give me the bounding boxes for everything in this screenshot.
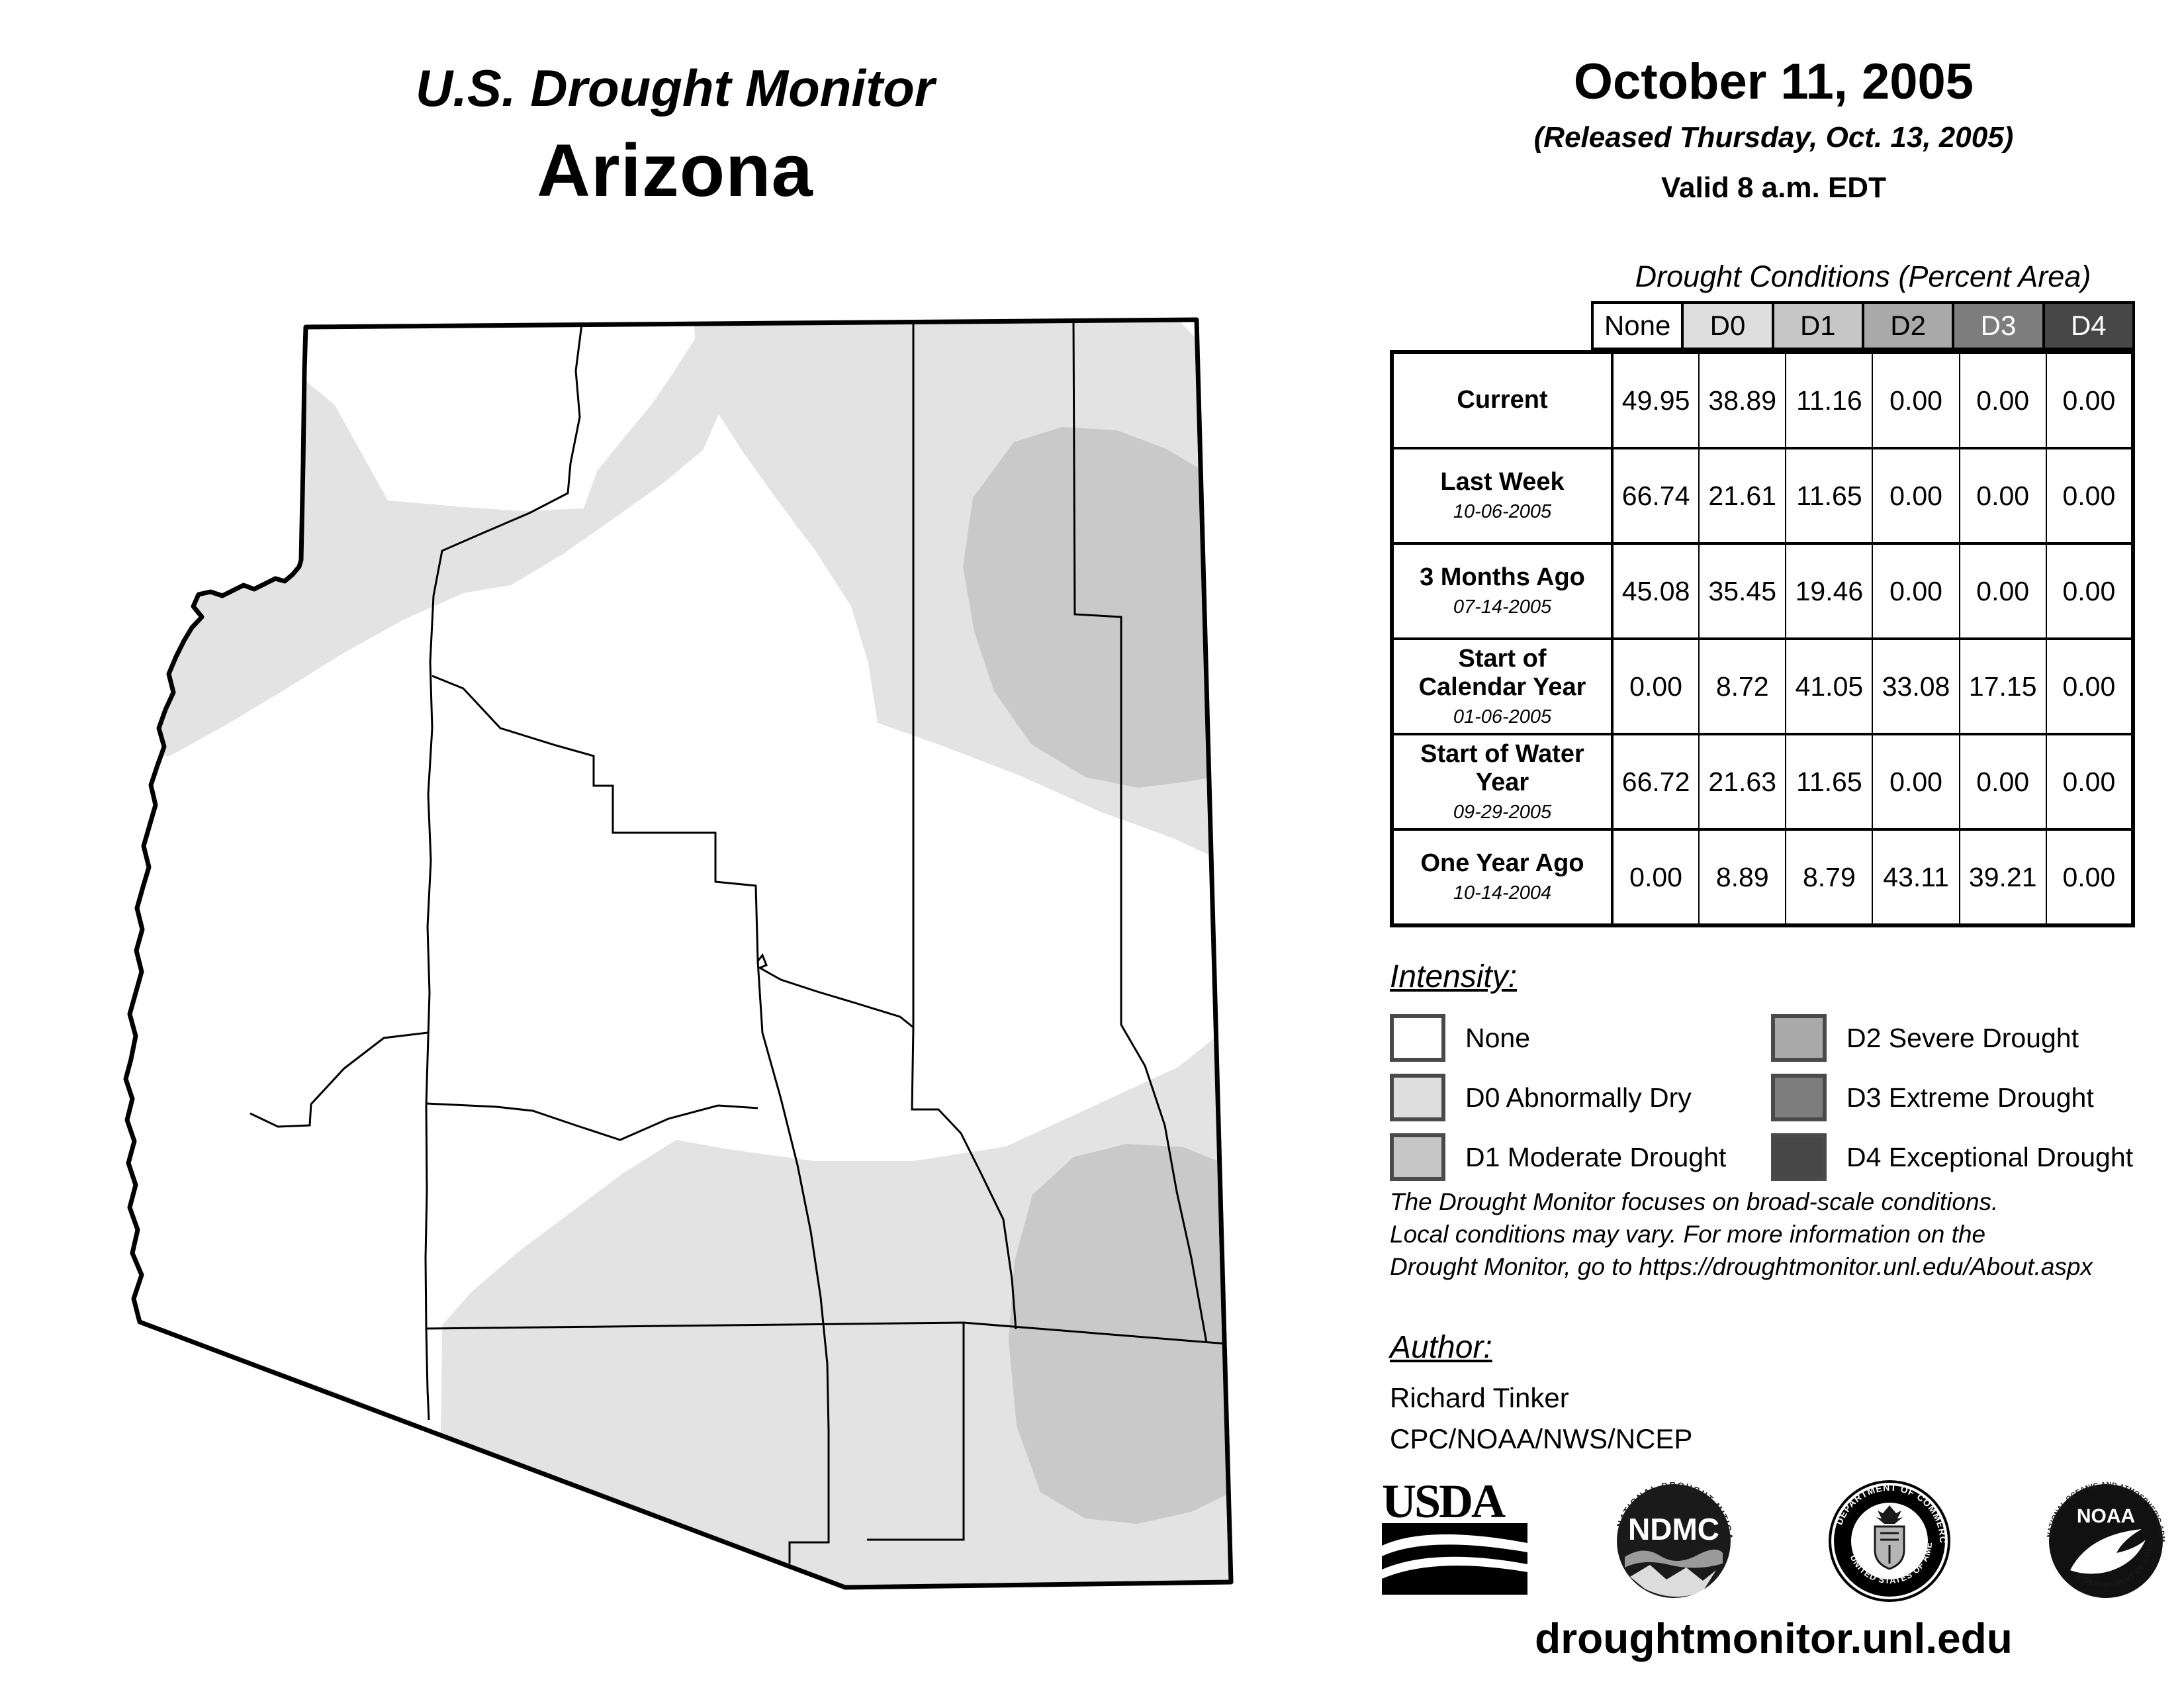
column-header-d3: D3 [1953, 301, 2043, 350]
column-header-d0: D0 [1682, 301, 1772, 350]
cell-value: 8.79 [1786, 829, 1872, 925]
author-name: Richard Tinker [1390, 1382, 1569, 1414]
cell-value: 39.21 [1960, 829, 2046, 925]
row-label: 3 Months Ago07-14-2005 [1392, 543, 1612, 639]
cell-value: 0.00 [1960, 734, 2046, 829]
author-org: CPC/NOAA/NWS/NCEP [1390, 1423, 1692, 1455]
cell-value: 0.00 [2046, 352, 2133, 448]
cell-value: 19.46 [1786, 543, 1872, 639]
legend-item-none: None [1390, 1014, 1771, 1062]
row-label: One Year Ago10-14-2004 [1392, 829, 1612, 925]
cell-value: 38.89 [1699, 352, 1786, 448]
ndmc-logo-text: NDMC [1628, 1512, 1719, 1546]
column-header-none: None [1591, 301, 1682, 350]
legend-item-d1: D1 Moderate Drought [1390, 1133, 1771, 1181]
cell-value: 11.16 [1786, 352, 1872, 448]
usda-logo-text: USDA [1382, 1480, 1527, 1523]
intensity-legend: None D2 Severe Drought D0 Abnormally Dry… [1390, 1014, 2171, 1193]
table-header-row: None D0 D1 D2 D3 D4 [1591, 301, 2135, 350]
cell-value: 0.00 [2046, 829, 2133, 925]
table-row: Start of Water Year09-29-2005 66.72 21.6… [1392, 734, 2133, 829]
cell-value: 21.63 [1699, 734, 1786, 829]
agency-logos: USDA NATIONAL DROUGHT MITIGATION CENTER … [1382, 1475, 2176, 1607]
date-block: October 11, 2005 (Released Thursday, Oct… [1377, 53, 2171, 205]
table-row: Start of Calendar Year01-06-2005 0.00 8.… [1392, 639, 2133, 734]
noaa-logo-text: NOAA [2077, 1505, 2135, 1527]
footer-url: droughtmonitor.unl.edu [1377, 1614, 2171, 1663]
cell-value: 0.00 [1872, 543, 1959, 639]
cell-value: 49.95 [1612, 352, 1699, 448]
legend-item-d3: D3 Extreme Drought [1771, 1074, 2094, 1121]
cell-value: 0.00 [2046, 543, 2133, 639]
cell-value: 0.00 [1960, 448, 2046, 543]
cell-value: 0.00 [1960, 352, 2046, 448]
column-header-d4: D4 [2044, 301, 2135, 350]
column-header-d1: D1 [1773, 301, 1863, 350]
map-region-d1-southeast [1009, 1144, 1238, 1524]
row-label: Current [1392, 352, 1612, 448]
cell-value: 0.00 [2046, 448, 2133, 543]
arizona-drought-map [0, 0, 1324, 1688]
commerce-seal-logo: DEPARTMENT OF COMMERCE UNITED STATES OF … [1819, 1471, 1960, 1611]
cell-value: 0.00 [1960, 543, 2046, 639]
noaa-logo: NATIONAL OCEANIC AND ATMOSPHERIC ADMINIS… [2036, 1471, 2176, 1611]
cell-value: 0.00 [1872, 352, 1959, 448]
cell-value: 41.05 [1786, 639, 1872, 734]
cell-value: 0.00 [2046, 734, 2133, 829]
cell-value: 33.08 [1872, 639, 1959, 734]
cell-value: 0.00 [1612, 829, 1699, 925]
row-label: Start of Calendar Year01-06-2005 [1392, 639, 1612, 734]
drought-conditions-table: Current 49.95 38.89 11.16 0.00 0.00 0.00… [1390, 350, 2135, 927]
report-released-date: (Released Thursday, Oct. 13, 2005) [1377, 121, 2171, 154]
cell-value: 8.89 [1699, 829, 1786, 925]
disclaimer-text: The Drought Monitor focuses on broad-sca… [1390, 1186, 2171, 1283]
report-date: October 11, 2005 [1377, 53, 2171, 111]
legend-item-d2: D2 Severe Drought [1771, 1014, 2079, 1062]
cell-value: 45.08 [1612, 543, 1699, 639]
cell-value: 8.72 [1699, 639, 1786, 734]
cell-value: 43.11 [1872, 829, 1959, 925]
cell-value: 11.65 [1786, 734, 1872, 829]
cell-value: 35.45 [1699, 543, 1786, 639]
cell-value: 66.72 [1612, 734, 1699, 829]
column-header-d2: D2 [1863, 301, 1953, 350]
legend-swatch-d2 [1771, 1014, 1827, 1062]
usda-swoosh-icon [1382, 1523, 1527, 1595]
cell-value: 21.61 [1699, 448, 1786, 543]
cell-value: 0.00 [2046, 639, 2133, 734]
report-valid-time: Valid 8 a.m. EDT [1377, 171, 2171, 205]
legend-swatch-none [1390, 1014, 1445, 1062]
ndmc-logo: NATIONAL DROUGHT MITIGATION CENTER UNIVE… [1604, 1471, 1744, 1611]
author-heading: Author: [1390, 1329, 1492, 1366]
table-row: One Year Ago10-14-2004 0.00 8.89 8.79 43… [1392, 829, 2133, 925]
row-label: Start of Water Year09-29-2005 [1392, 734, 1612, 829]
cell-value: 0.00 [1612, 639, 1699, 734]
table-row: Last Week10-06-2005 66.74 21.61 11.65 0.… [1392, 448, 2133, 543]
table-row: Current 49.95 38.89 11.16 0.00 0.00 0.00 [1392, 352, 2133, 448]
cell-value: 11.65 [1786, 448, 1872, 543]
legend-item-d4: D4 Exceptional Drought [1771, 1133, 2133, 1181]
legend-swatch-d3 [1771, 1074, 1827, 1121]
legend-item-d0: D0 Abnormally Dry [1390, 1074, 1771, 1121]
legend-swatch-d1 [1390, 1133, 1445, 1181]
legend-swatch-d0 [1390, 1074, 1445, 1121]
cell-value: 0.00 [1872, 448, 1959, 543]
intensity-heading: Intensity: [1390, 959, 1517, 995]
table-row: 3 Months Ago07-14-2005 45.08 35.45 19.46… [1392, 543, 2133, 639]
cell-value: 66.74 [1612, 448, 1699, 543]
legend-swatch-d4 [1771, 1133, 1827, 1181]
usda-logo: USDA [1382, 1480, 1527, 1602]
cell-value: 0.00 [1872, 734, 1959, 829]
table-caption: Drought Conditions (Percent Area) [1591, 259, 2135, 294]
cell-value: 17.15 [1960, 639, 2046, 734]
row-label: Last Week10-06-2005 [1392, 448, 1612, 543]
